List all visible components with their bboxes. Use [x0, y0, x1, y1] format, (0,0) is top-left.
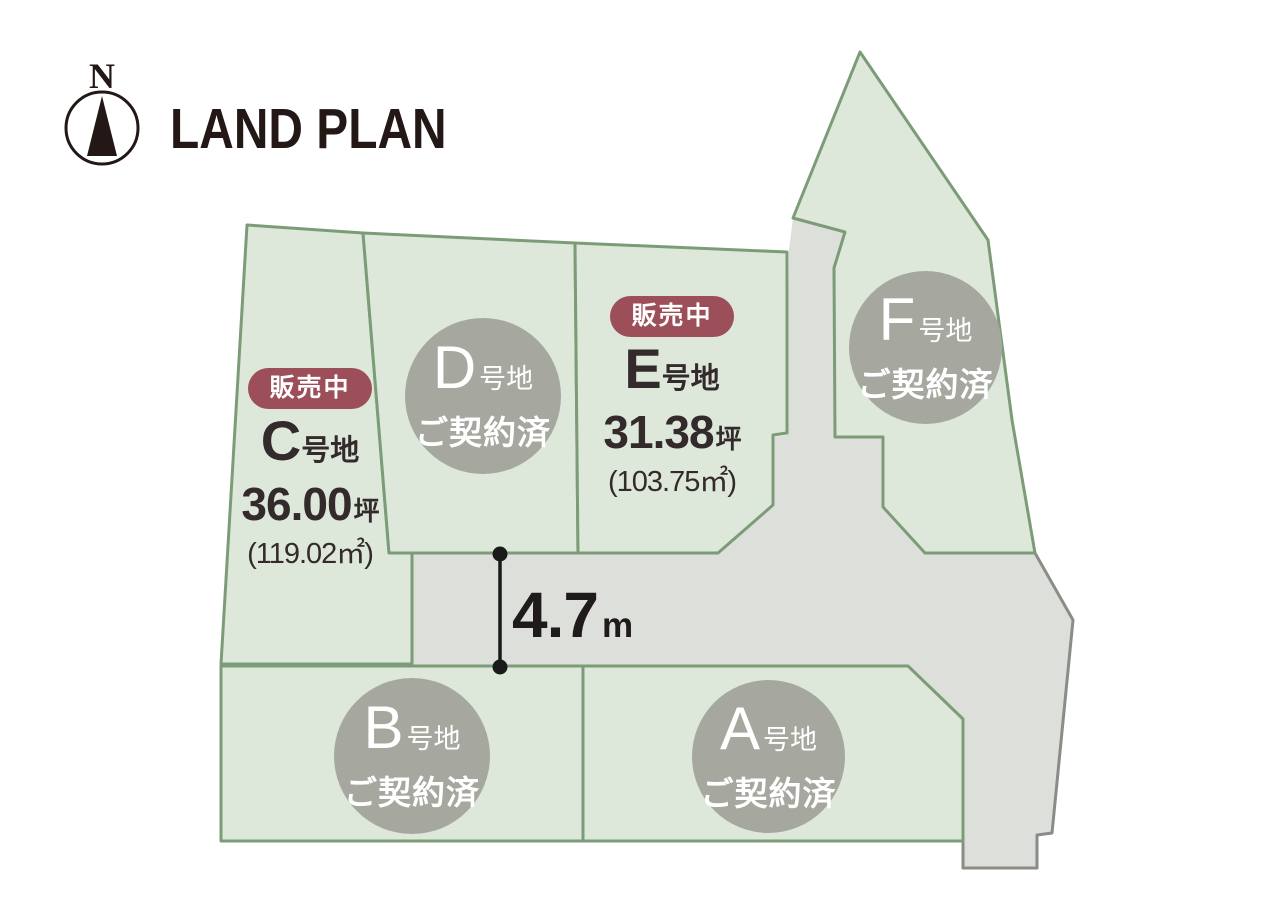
- lot-c-area-sqm: (119.02㎡): [226, 538, 394, 571]
- lot-a-sold-circle: A号地 ご契約済: [692, 680, 845, 833]
- lot-d-name: D号地: [433, 339, 533, 413]
- lot-f-sold-circle: F号地 ご契約済: [849, 271, 1002, 424]
- land-plan-page: N LAND PLAN 販売中 C号地 36.00坪 (119.02㎡) 販売中…: [0, 0, 1280, 905]
- lot-c-name: C号地: [226, 415, 394, 482]
- dimension-dot-bottom: [493, 660, 508, 675]
- lot-f-status: ご契約済: [858, 365, 994, 405]
- lot-b-name: B号地: [363, 699, 460, 773]
- lot-e-area-sqm: (103.75㎡): [588, 466, 756, 499]
- lot-f-name: F号地: [879, 291, 973, 365]
- lot-c-suffix: 号地: [301, 435, 359, 467]
- lot-e-status-badge: 販売中: [610, 296, 733, 337]
- north-compass-icon: N: [58, 46, 158, 176]
- lot-c-area-tsubo: 36.00坪: [226, 482, 394, 538]
- compass-needle: [87, 96, 117, 156]
- lot-a-status: ご契約済: [701, 774, 837, 814]
- lot-d-status: ご契約済: [415, 413, 551, 453]
- lot-b-sold-circle: B号地 ご契約済: [334, 678, 490, 834]
- page-title: LAND PLAN: [170, 96, 447, 162]
- lot-e-label-block: 販売中 E号地 31.38坪 (103.75㎡): [588, 296, 756, 499]
- lot-c-letter: C: [261, 409, 301, 472]
- compass-north-label: N: [89, 56, 115, 96]
- lot-c-label-block: 販売中 C号地 36.00坪 (119.02㎡): [226, 368, 394, 571]
- dimension-dot-top: [493, 547, 508, 562]
- lot-e-letter: E: [624, 337, 661, 400]
- lot-c-status-badge: 販売中: [248, 368, 371, 409]
- road-width-label: 4.7 m: [512, 578, 633, 652]
- lot-e-suffix: 号地: [662, 363, 720, 395]
- lot-e-area-tsubo: 31.38坪: [588, 410, 756, 466]
- lot-d-sold-circle: D号地 ご契約済: [405, 318, 561, 474]
- lot-b-status: ご契約済: [344, 773, 480, 813]
- lot-e-name: E号地: [588, 343, 756, 410]
- lot-a-name: A号地: [720, 700, 817, 774]
